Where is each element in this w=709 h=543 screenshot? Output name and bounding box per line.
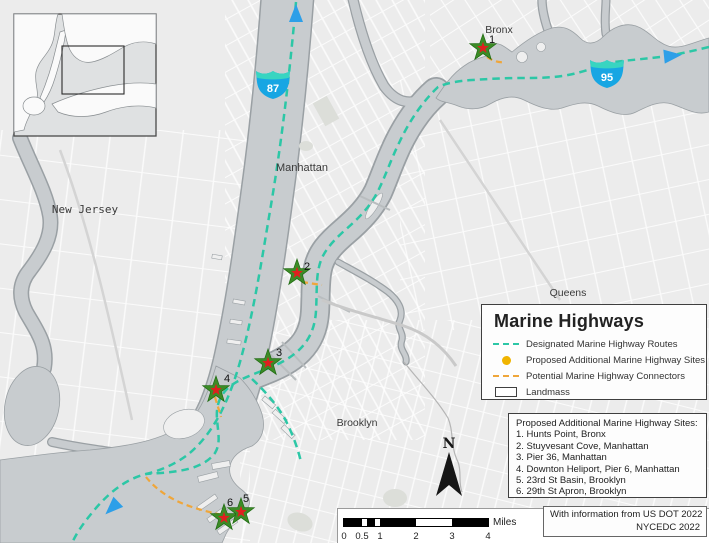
sites-list-item-2: 2. Stuyvesant Cove, Manhattan [516, 441, 699, 452]
scale-tick-1: 1 [377, 531, 382, 542]
scale-tick-0-5: 0.5 [355, 531, 368, 542]
attribution-line-1: With information from US DOT 2022 [550, 509, 700, 522]
site-number-4: 4 [224, 373, 230, 385]
inset-map [14, 14, 156, 136]
legend-item-sites: Proposed Additional Marine Highway Sites [492, 352, 696, 368]
shield-95-number: 95 [601, 72, 613, 84]
sites-list-item-1: 1. Hunts Point, Bronx [516, 429, 699, 440]
sites-list-title: Proposed Additional Marine Highway Sites… [516, 418, 699, 429]
legend-item-landmass: Landmass [492, 384, 696, 400]
yellow-dot-icon [492, 356, 520, 365]
site-number-6: 6 [227, 497, 233, 509]
attribution-line-2: NYCEDC 2022 [550, 522, 700, 535]
scale-bar-segments [343, 518, 489, 527]
landmass-box-icon [492, 387, 520, 397]
label-manhattan: Manhattan [276, 162, 328, 174]
label-brooklyn: Brooklyn [337, 417, 378, 429]
site-number-5: 5 [243, 493, 249, 505]
site-number-2: 2 [304, 261, 310, 273]
orange-dashed-line-icon [492, 375, 520, 378]
attribution: With information from US DOT 2022 NYCEDC… [543, 506, 707, 537]
sites-list-item-5: 5. 23rd St Basin, Brooklyn [516, 475, 699, 486]
scale-tick-4: 4 [485, 531, 490, 542]
legend-item-routes: Designated Marine Highway Routes [492, 336, 696, 352]
scale-tick-3: 3 [449, 531, 454, 542]
label-new-jersey: New Jersey [52, 203, 119, 216]
label-bronx: Bronx [485, 24, 513, 36]
site-number-3: 3 [276, 347, 282, 359]
scale-tick-0: 0 [341, 531, 346, 542]
teal-dashed-line-icon [492, 343, 520, 346]
marine-highways-map-figure: 87 95 1 2 3 4 5 6 Bronx Ma [0, 0, 709, 543]
legend-item-connectors: Potential Marine Highway Connectors [492, 368, 696, 384]
north-arrow-label: N [443, 436, 456, 452]
legend: Marine Highways Designated Marine Highwa… [481, 304, 707, 400]
scale-unit-label: Miles [493, 517, 516, 528]
sites-list-item-3: 3. Pier 36, Manhattan [516, 452, 699, 463]
sites-list: Proposed Additional Marine Highway Sites… [508, 413, 707, 498]
label-queens: Queens [550, 287, 587, 299]
scale-tick-2: 2 [413, 531, 418, 542]
sites-list-item-4: 4. Downton Heliport, Pier 6, Manhattan [516, 464, 699, 475]
legend-title: Marine Highways [494, 311, 696, 332]
sites-list-item-6: 6. 29th St Apron, Brooklyn [516, 486, 699, 497]
shield-87-number: 87 [267, 83, 279, 95]
